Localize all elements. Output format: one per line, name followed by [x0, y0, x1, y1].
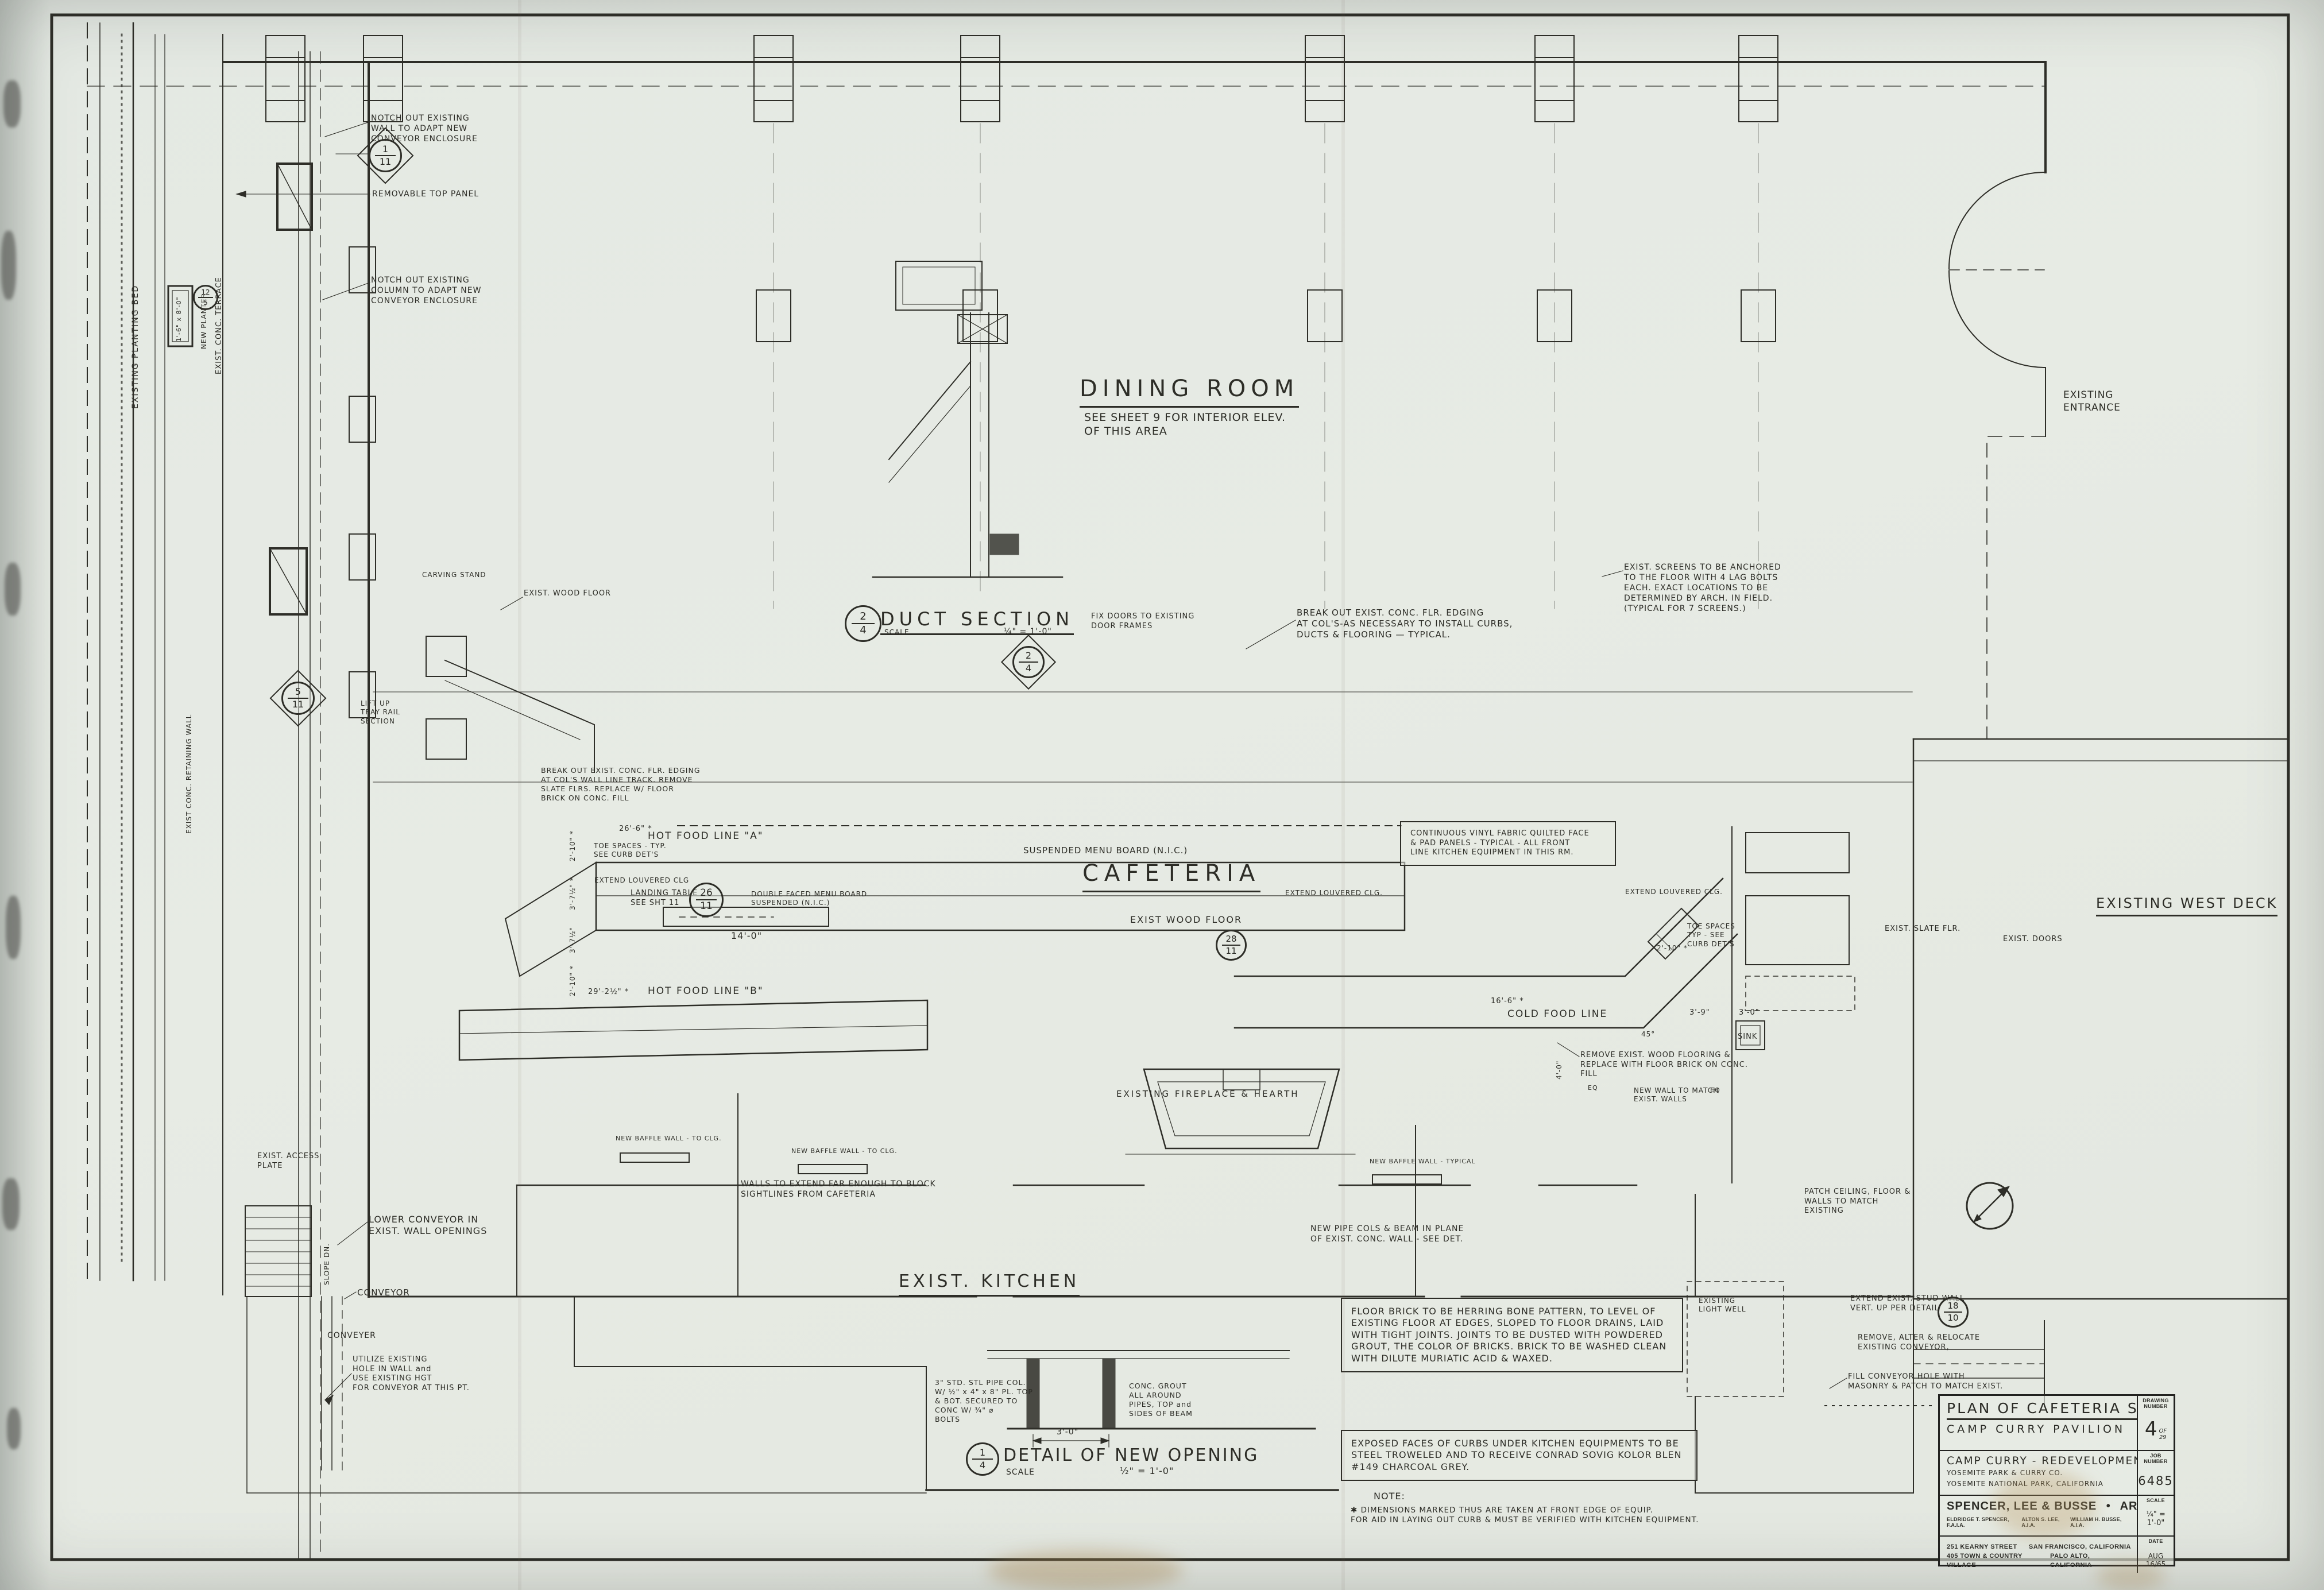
annotation-label: EXIST CONC. RETAINING WALL — [185, 714, 194, 834]
note-dimensions: ✱ DIMENSIONS MARKED THUS ARE TAKEN AT FR… — [1351, 1506, 1753, 1526]
annotation-label: SUSPENDED MENU BOARD (N.I.C.) — [1023, 845, 1188, 856]
paper-stain — [2096, 1562, 2165, 1590]
scan-smudge — [1, 231, 16, 300]
annotation-label: REMOVE, ALTER & RELOCATE EXISTING CONVEY… — [1858, 1333, 2030, 1352]
note-title: NOTE: — [1374, 1491, 1405, 1502]
annotation-label: REMOVE EXIST. WOOD FLOORING & REPLACE WI… — [1580, 1051, 1770, 1080]
annotation-label: EXTEND LOUVERED CLG — [594, 876, 689, 885]
detail-marker: 125 — [193, 285, 218, 310]
detail-marker: 511 — [281, 682, 315, 715]
project-title: CAMP CURRY - REDEVELOPMENT-1966 — [1947, 1455, 2131, 1467]
scan-smudge — [2, 1178, 20, 1230]
scan-smudge — [3, 80, 21, 127]
annotation-label: EXTEND EXIST. STUD WALL VERT. UP PER DET… — [1850, 1294, 2011, 1313]
paper-crease — [518, 0, 521, 1590]
note-vinyl-panels: CONTINUOUS VINYL FABRIC QUILTED FACE & P… — [1400, 821, 1616, 866]
detail-marker: 2611 — [689, 883, 724, 917]
annotation-label: 2'-10" * — [569, 965, 577, 996]
annotation-label: LANDING TABLE SEE SHT 11 — [631, 889, 698, 908]
annotation-label: NEW PIPE COLS & BEAM IN PLANE OF EXIST. … — [1310, 1224, 1511, 1245]
annotation-label: NEW BAFFLE WALL - TO CLG. — [791, 1147, 898, 1155]
annotation-label: DOUBLE FACED MENU BOARD SUSPENDED (N.I.C… — [751, 890, 900, 908]
area-label-entrance: EXISTING ENTRANCE — [2063, 389, 2121, 415]
detail-marker: 2811 — [1216, 930, 1247, 961]
label-hot-food-line-a: HOT FOOD LINE "A" — [648, 830, 764, 843]
annotation-label: 3" STD. STL PIPE COL. W/ ½" x 4" x 8" PL… — [935, 1378, 1050, 1424]
annotation-label: EXIST. SLATE FLR. — [1885, 924, 1960, 934]
annotation-label: CONC. GROUT ALL AROUND PIPES, TOP and SI… — [1129, 1382, 1221, 1418]
detail-marker: 14 — [966, 1442, 999, 1476]
room-label-cafeteria: CAFETERIA — [1082, 859, 1260, 892]
label-hot-food-line-b: HOT FOOD LINE "B" — [648, 985, 764, 998]
drawing-number-label: DRAWING NUMBER — [2139, 1398, 2172, 1410]
annotation-label: EXIST. WOOD FLOOR — [524, 589, 611, 599]
annotation-label: NEW BAFFLE WALL - TYPICAL — [1370, 1158, 1476, 1166]
drawing-title: PLAN OF CAFETERIA SERVICE — [1947, 1400, 2137, 1420]
annotation-label: REMOVABLE TOP PANEL — [372, 189, 479, 200]
label-fireplace: EXISTING FIREPLACE & HEARTH — [1116, 1089, 1300, 1100]
drawing-number: 4 OF29 — [2145, 1418, 2167, 1441]
annotation-label: NOTCH OUT EXISTING COLUMN TO ADAPT NEW C… — [371, 276, 526, 307]
annotation-label: 3'-9" — [1689, 1008, 1710, 1018]
bullet-separator: • — [2106, 1500, 2111, 1512]
annotation-label: NEW WALL TO MATCH EXIST. WALLS — [1634, 1086, 1760, 1104]
annotation-label: 1'-6" x 8'-0" — [175, 296, 183, 342]
drawing-subtitle: CAMP CURRY PAVILION — [1947, 1423, 2131, 1436]
annotation-label: 2'-10" * — [569, 830, 577, 861]
scan-smudge — [7, 1408, 21, 1449]
annotation-label: BREAK OUT EXIST. CONC. FLR. EDGING AT CO… — [1297, 608, 1567, 641]
scale-value: ¼" = 1'-0" — [2139, 1510, 2172, 1527]
annotation-label: 3'-0" — [1739, 1008, 1760, 1018]
detail-title-new-opening: DETAIL OF NEW OPENING — [1003, 1445, 1259, 1467]
annotation-label: FIX DOORS TO EXISTING DOOR FRAMES — [1091, 612, 1229, 631]
annotation-label: BREAK OUT EXIST. CONC. FLR. EDGING AT CO… — [541, 766, 719, 803]
annotation-label: 2'-10" * — [1657, 944, 1688, 953]
annotation-label: 3'-7½" — [569, 927, 577, 953]
annotation-label: SINK — [1738, 1032, 1757, 1042]
annotation-label: EXIST. DOORS — [2003, 935, 2063, 945]
scale-label: SCALE — [2147, 1498, 2165, 1503]
annotation-label: TOE SPACES - TYP. SEE CURB DET'S — [594, 842, 709, 860]
scan-smudge — [5, 563, 21, 616]
job-number-label: JOB NUMBER — [2139, 1453, 2172, 1465]
detail-marker: 24 — [1012, 646, 1045, 678]
scan-smudge — [6, 896, 21, 959]
annotation-label: 4'-0" — [1555, 1061, 1564, 1080]
annotation-label: SCALE — [884, 628, 909, 637]
annotation-label: CONVEYOR — [357, 1287, 410, 1298]
annotation-label: LOWER CONVEYOR IN EXIST. WALL OPENINGS — [369, 1214, 564, 1237]
paper-stain — [988, 1550, 1183, 1590]
north-arrow-icon — [1967, 1183, 2013, 1229]
annotation-label: NEW BAFFLE WALL - TO CLG. — [616, 1135, 722, 1143]
annotation-label: 3'-0" — [1057, 1427, 1078, 1438]
date-label: DATE — [2148, 1538, 2163, 1544]
annotation-label: 26'-6" * — [619, 825, 652, 834]
detail-marker: 111 — [369, 139, 402, 172]
annotation-label: PATCH CEILING, FLOOR & WALLS TO MATCH EX… — [1804, 1187, 1931, 1216]
annotation-label: EXTEND LOUVERED CLG. — [1285, 889, 1383, 897]
label-cold-food-line: COLD FOOD LINE — [1507, 1008, 1607, 1021]
blueprint-scan: DINING ROOMSEE SHEET 9 FOR INTERIOR ELEV… — [0, 0, 2324, 1590]
room-label-dining-room: DINING ROOM — [1080, 374, 1299, 408]
annotation-label: EXTEND LOUVERED CLG. — [1625, 888, 1723, 896]
annotation-label: 29'-2½" * — [588, 988, 629, 997]
annotation-label: ½" = 1'-0" — [1120, 1465, 1174, 1477]
detail-marker: 24 — [845, 605, 881, 642]
annotation-label: 16'-6" * — [1491, 997, 1524, 1007]
note-exposed-curbs: EXPOSED FACES OF CURBS UNDER KITCHEN EQU… — [1341, 1430, 1697, 1481]
annotation-label: WALLS TO EXTEND FAR ENOUGH TO BLOCK SIGH… — [741, 1179, 1011, 1200]
note-floor-brick: FLOOR BRICK TO BE HERRING BONE PATTERN, … — [1341, 1298, 1683, 1372]
annotation-label: SCALE — [1006, 1468, 1035, 1478]
annotation-label: EQ — [1588, 1084, 1598, 1092]
annotation-label: EXIST. ACCESS PLATE — [257, 1152, 338, 1171]
firm-addresses: 251 KEARNY STREETSAN FRANCISCO, CALIFORN… — [1947, 1543, 2131, 1570]
annotation-label: EXISTING PLANTING BED — [131, 285, 141, 409]
annotation-label: CARVING STAND — [422, 571, 486, 579]
annotation-label: 14'-0" — [731, 930, 762, 942]
paper-stain — [1993, 1470, 2096, 1539]
annotation-label: EXIST. SCREENS TO BE ANCHORED TO THE FLO… — [1624, 563, 1813, 614]
job-number: 6485 — [2138, 1474, 2173, 1488]
paper-crease — [1341, 0, 1345, 1590]
annotation-label: TOE SPACES TYP - SEE CURB DET'S — [1687, 922, 1756, 949]
area-label-west-deck: EXISTING WEST DECK — [2096, 895, 2277, 916]
annotation-label: 45° — [1641, 1030, 1655, 1039]
annotation-label: CONVEYER — [327, 1331, 376, 1341]
annotation-label: FILL CONVEYOR HOLE WITH MASONRY & PATCH … — [1848, 1372, 2032, 1391]
detail-marker: 1810 — [1938, 1297, 1969, 1328]
annotation-label: SEE SHEET 9 FOR INTERIOR ELEV. OF THIS A… — [1084, 411, 1343, 439]
drawing-sheet: DINING ROOMSEE SHEET 9 FOR INTERIOR ELEV… — [0, 0, 2324, 1590]
annotation-label: EQ — [1710, 1086, 1720, 1094]
annotation-label: 3'-7½" * — [569, 877, 577, 910]
room-label-exist-kitchen: EXIST. KITCHEN — [899, 1271, 1080, 1297]
annotation-label: EXIST WOOD FLOOR — [1130, 914, 1242, 926]
annotation-label: SLOPE DN. — [323, 1243, 331, 1285]
annotation-label: EXISTING LIGHT WELL — [1699, 1297, 1768, 1314]
annotation-label: LIFT UP TRAY RAIL SECTION — [361, 699, 435, 726]
